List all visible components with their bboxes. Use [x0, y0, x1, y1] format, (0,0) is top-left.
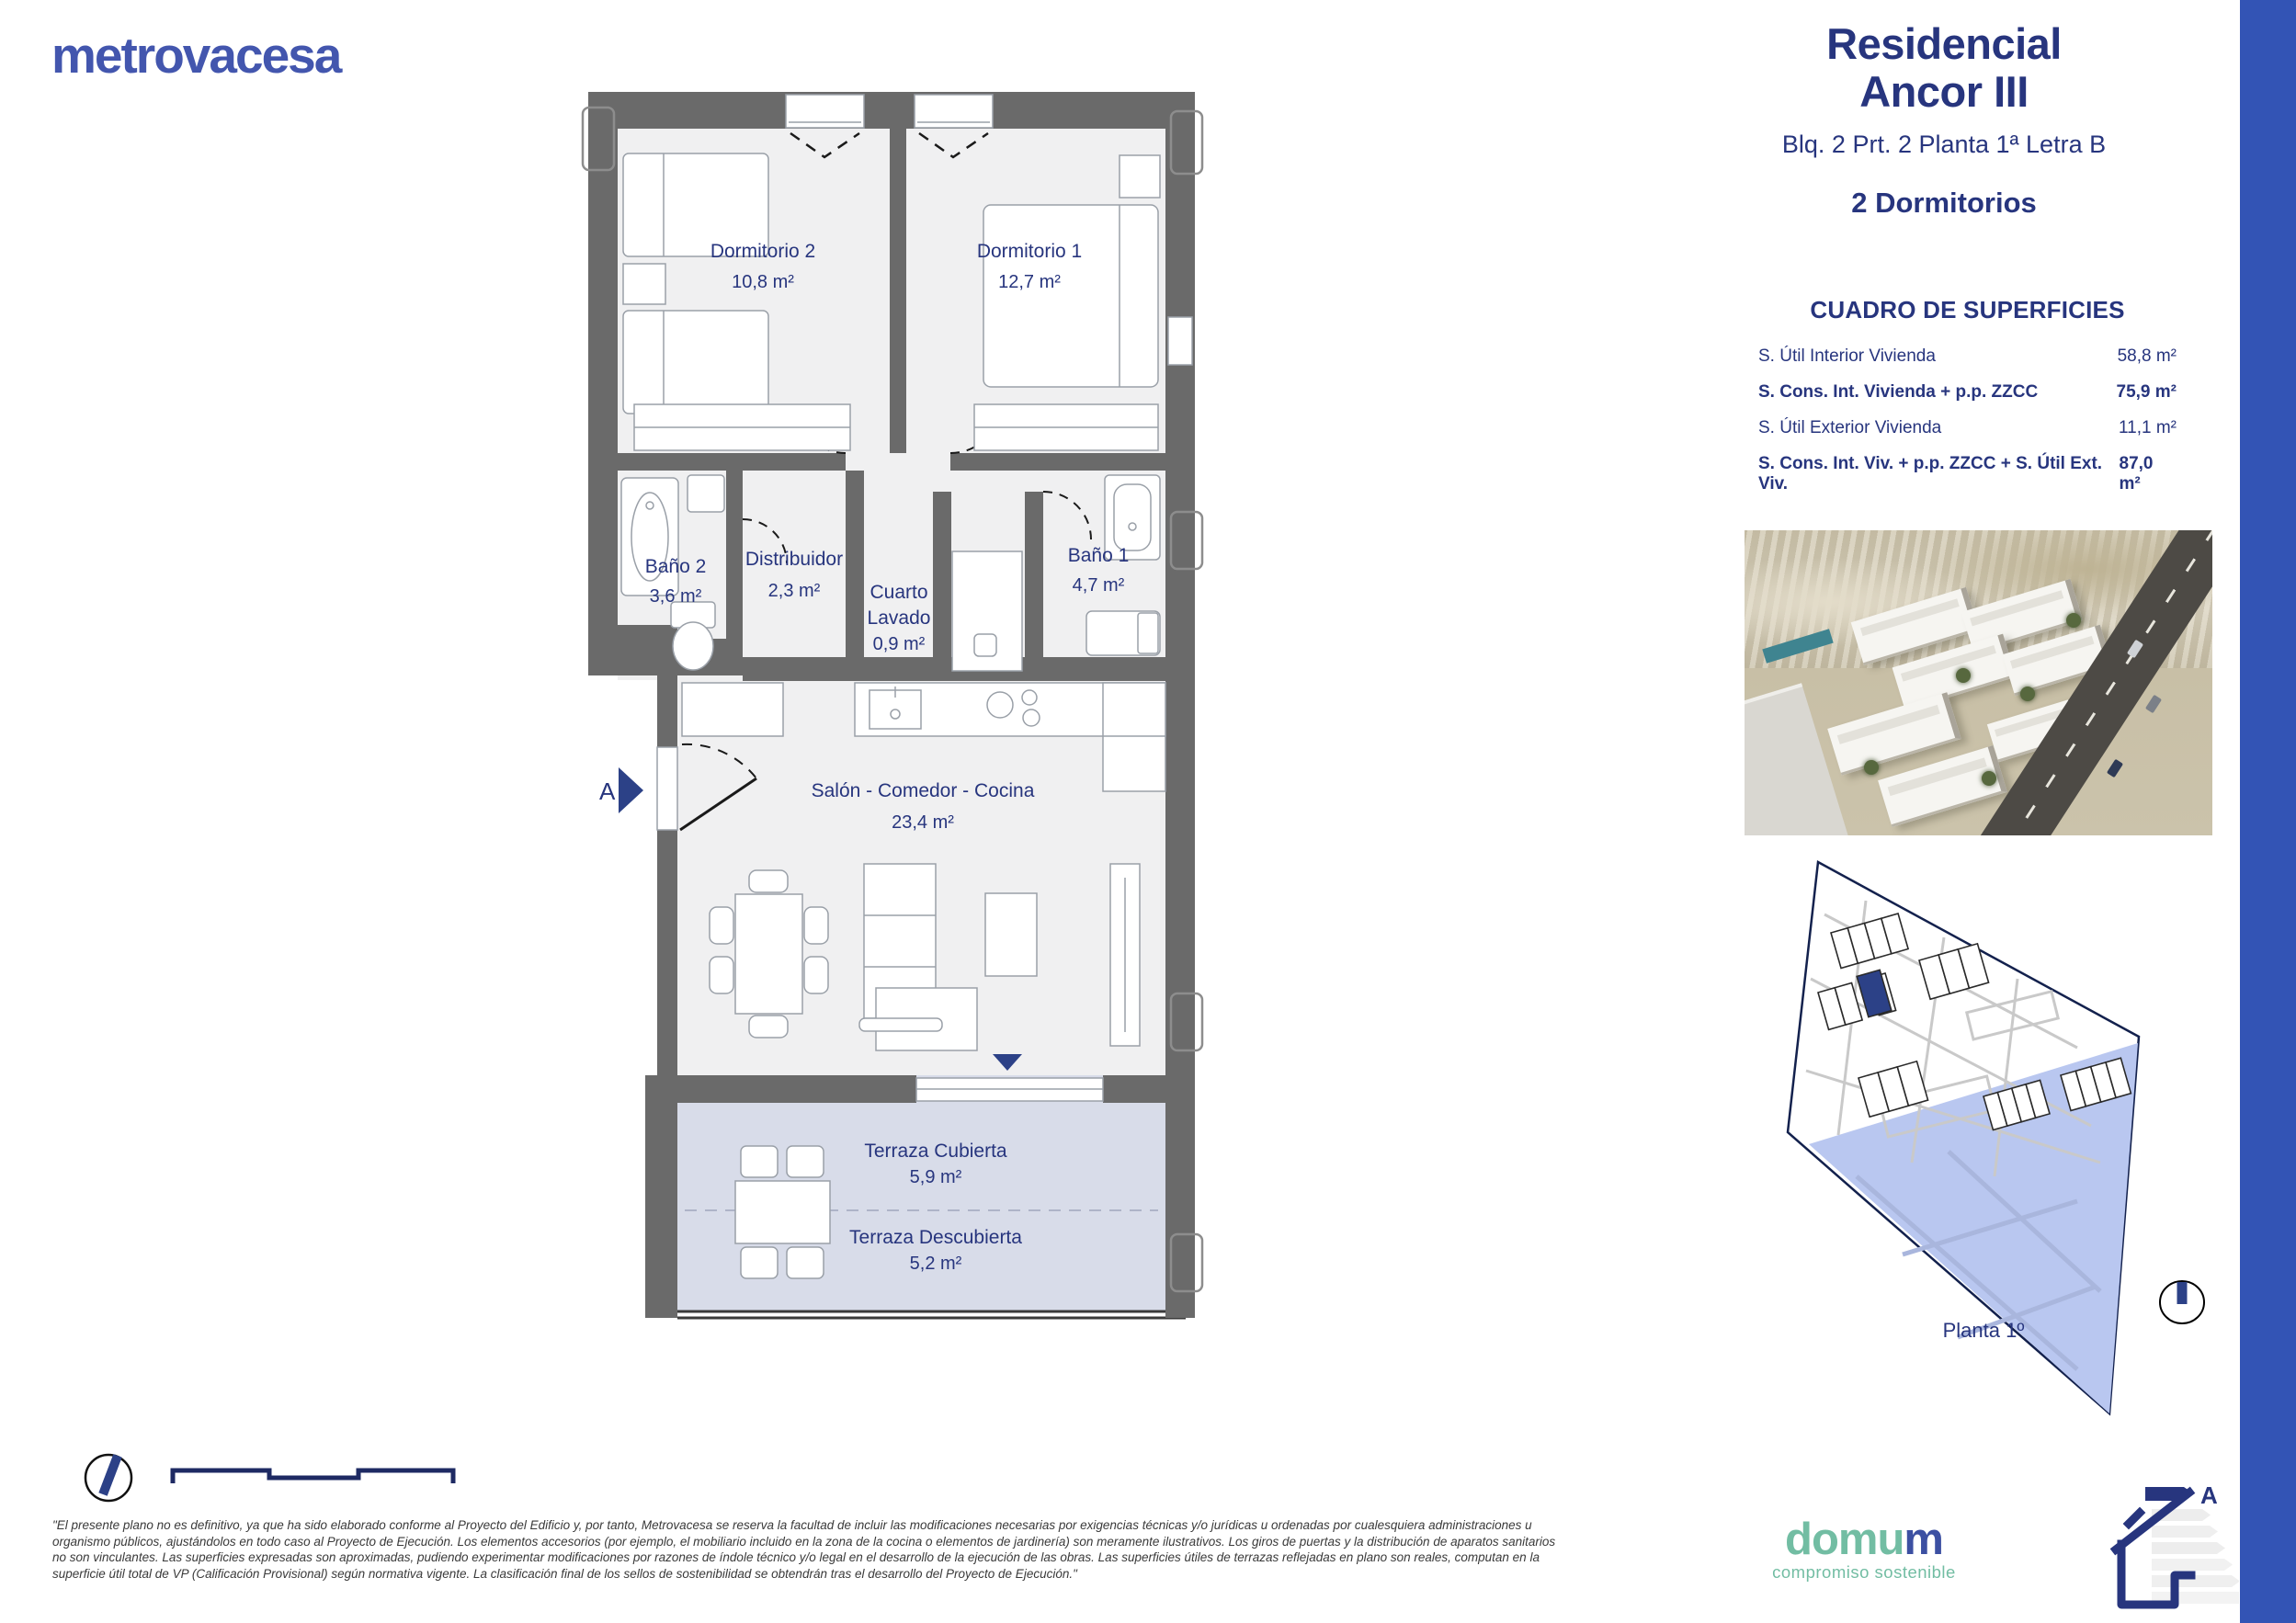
scale-bar — [170, 1461, 457, 1487]
svg-text:23,4 m²: 23,4 m² — [892, 812, 954, 833]
domum-logo: domum compromiso sostenible — [1754, 1518, 1974, 1583]
disclaimer-line: no son vinculantes. Las superficies expr… — [52, 1549, 1734, 1566]
disclaimer: "El presente plano no es definitivo, ya … — [52, 1517, 1734, 1582]
washing-machine — [952, 551, 1022, 671]
domum-word-teal: domu — [1785, 1515, 1904, 1564]
coffee-table — [985, 893, 1037, 976]
table-row: S. Cons. Int. Vivienda + p.p. ZZCC 75,9 … — [1758, 382, 2177, 403]
table-row: S. Útil Exterior Vivienda 11,1 m² — [1758, 418, 2177, 438]
site-plan: Planta 1º — [1774, 859, 2215, 1434]
section-marker-label: A — [599, 777, 616, 805]
bedrooms-count: 2 Dormitorios — [1746, 187, 2142, 220]
svg-text:Baño 1: Baño 1 — [1068, 545, 1130, 566]
entry-door-gap — [657, 747, 677, 830]
svg-text:Distribuidor: Distribuidor — [745, 549, 843, 570]
surfaces-table: CUADRO DE SUPERFICIES S. Útil Interior V… — [1758, 296, 2177, 510]
section-marker-arrow-icon — [619, 767, 643, 813]
row-label: S. Útil Exterior Vivienda — [1758, 418, 1941, 438]
right-accent-bar — [2240, 0, 2296, 1623]
row-label: S. Cons. Int. Viv. + p.p. ZZCC + S. Útil… — [1758, 454, 2120, 494]
svg-text:10,8 m²: 10,8 m² — [732, 272, 794, 292]
header: Residencial Ancor III Blq. 2 Prt. 2 Plan… — [1746, 20, 2142, 220]
row-value: 58,8 m² — [2118, 346, 2177, 367]
page-title-line1: Residencial — [1746, 20, 2142, 68]
svg-text:Lavado: Lavado — [868, 607, 931, 629]
unit-reference: Blq. 2 Prt. 2 Planta 1ª Letra B — [1746, 131, 2142, 159]
neighbor-building — [1745, 683, 1848, 835]
palm-tree — [1982, 771, 1996, 786]
svg-text:Dormitorio 2: Dormitorio 2 — [710, 241, 815, 262]
svg-text:Terraza Descubierta: Terraza Descubierta — [849, 1227, 1022, 1248]
disclaimer-line: organismo públicos, ajustándolos en todo… — [52, 1534, 1734, 1550]
svg-text:Baño 2: Baño 2 — [645, 556, 707, 577]
palm-tree — [2066, 613, 2081, 628]
row-value: 11,1 m² — [2119, 418, 2177, 438]
svg-text:Dormitorio 1: Dormitorio 1 — [977, 241, 1082, 262]
aerial-render-image — [1745, 530, 2212, 835]
rating-letter: A — [2200, 1481, 2218, 1509]
site-plan-caption: Planta 1º — [1943, 1319, 2025, 1342]
orientation-compass-icon — [81, 1450, 140, 1505]
metrovacesa-logo: metrovacesa — [51, 26, 340, 85]
svg-text:0,9 m²: 0,9 m² — [873, 634, 926, 654]
energy-bars — [2152, 1509, 2239, 1604]
svg-text:2,3 m²: 2,3 m² — [768, 581, 821, 601]
car — [2107, 759, 2123, 778]
palm-tree — [1864, 760, 1879, 775]
floor-plan: A Dormitorio 2 10,8 m² Dormitorio 1 12,7… — [579, 87, 1213, 1374]
car — [2145, 695, 2162, 714]
row-value: 75,9 m² — [2117, 382, 2177, 403]
tv-unit — [1110, 864, 1140, 1046]
svg-text:4,7 m²: 4,7 m² — [1073, 575, 1125, 596]
table-row: S. Útil Interior Vivienda 58,8 m² — [1758, 346, 2177, 367]
page-title-line2: Ancor III — [1746, 68, 2142, 116]
table-row: S. Cons. Int. Viv. + p.p. ZZCC + S. Útil… — [1758, 454, 2177, 494]
svg-text:Cuarto: Cuarto — [870, 582, 927, 603]
disclaimer-line: "El presente plano no es definitivo, ya … — [52, 1517, 1734, 1534]
surfaces-title: CUADRO DE SUPERFICIES — [1758, 296, 2177, 324]
palm-tree — [1956, 668, 1971, 683]
svg-text:5,2 m²: 5,2 m² — [910, 1254, 962, 1274]
row-value: 87,0 m² — [2120, 454, 2177, 494]
svg-text:Salón - Comedor - Cocina: Salón - Comedor - Cocina — [812, 780, 1035, 801]
disclaimer-line: superficie útil total de VP (Calificació… — [52, 1566, 1734, 1583]
row-label: S. Útil Interior Vivienda — [1758, 346, 1936, 367]
domum-word-navy: m — [1904, 1515, 1943, 1564]
svg-text:Terraza Cubierta: Terraza Cubierta — [864, 1141, 1007, 1162]
palm-tree — [2020, 687, 2035, 701]
svg-text:3,6 m²: 3,6 m² — [650, 586, 702, 607]
energy-rating-house-icon: A — [2101, 1481, 2239, 1619]
svg-text:12,7 m²: 12,7 m² — [998, 272, 1061, 292]
row-label: S. Cons. Int. Vivienda + p.p. ZZCC — [1758, 382, 2038, 403]
svg-text:5,9 m²: 5,9 m² — [910, 1167, 962, 1187]
domum-tagline: compromiso sostenible — [1754, 1562, 1974, 1583]
plan-sheet: metrovacesa Residencial Ancor III Blq. 2… — [0, 0, 2296, 1623]
